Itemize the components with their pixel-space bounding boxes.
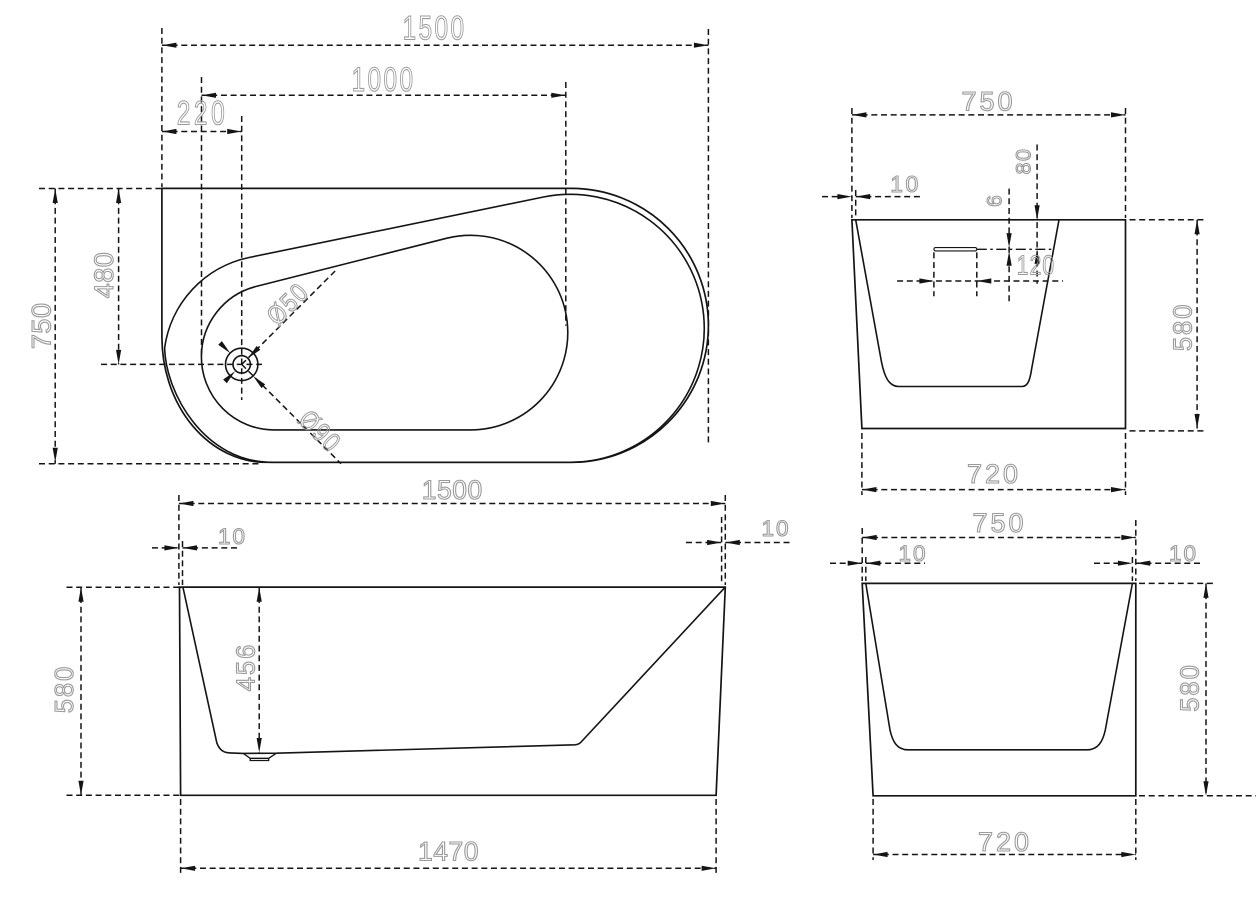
svg-text:120: 120 — [1017, 251, 1055, 282]
svg-text:480: 480 — [89, 252, 119, 299]
svg-text:750: 750 — [972, 508, 1026, 538]
svg-text:220: 220 — [177, 95, 229, 133]
svg-text:80: 80 — [1012, 148, 1036, 175]
svg-text:Ø90: Ø90 — [293, 405, 347, 459]
svg-text:10: 10 — [890, 171, 921, 197]
svg-text:1500: 1500 — [422, 475, 483, 505]
svg-text:720: 720 — [967, 459, 1021, 489]
svg-text:1000: 1000 — [352, 61, 416, 99]
svg-text:Ø50: Ø50 — [262, 278, 316, 332]
svg-text:10: 10 — [898, 541, 927, 566]
svg-text:1500: 1500 — [403, 10, 467, 48]
svg-text:10: 10 — [761, 516, 790, 541]
svg-text:6: 6 — [984, 195, 1007, 207]
svg-text:456: 456 — [233, 643, 261, 692]
svg-text:720: 720 — [978, 827, 1032, 857]
svg-text:580: 580 — [1177, 663, 1205, 712]
svg-text:750: 750 — [961, 87, 1015, 117]
svg-text:10: 10 — [218, 524, 247, 549]
svg-text:750: 750 — [27, 303, 57, 350]
svg-text:1470: 1470 — [418, 837, 479, 867]
svg-text:580: 580 — [1170, 303, 1198, 352]
svg-text:10: 10 — [1169, 541, 1198, 566]
svg-text:580: 580 — [51, 665, 79, 714]
